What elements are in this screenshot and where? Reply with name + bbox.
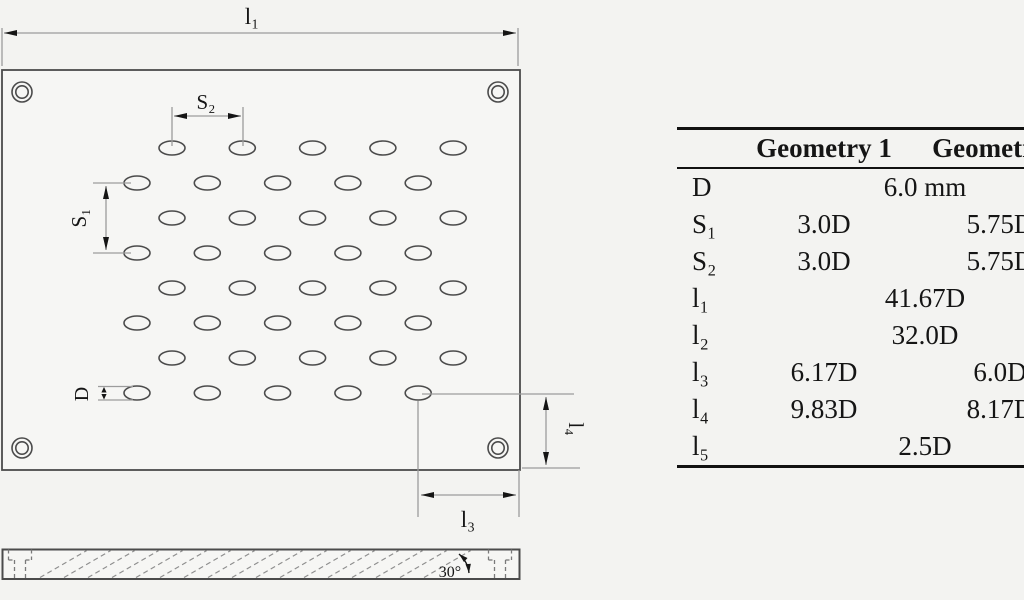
geometry1-value: 3.0D [749, 243, 899, 280]
l4-label: l₄ [564, 422, 588, 435]
row-shared-value: 2.5D [749, 428, 1024, 467]
figure-canvas: l₁ S₂ S₁ D l₄ [0, 0, 1024, 600]
row-label: l₃ [677, 354, 749, 391]
side-section-view: 30° [3, 550, 520, 582]
row-shared-value: 32.0D [749, 317, 1024, 354]
row-label: D [677, 168, 749, 206]
geometry2-value: 8.17D [899, 391, 1024, 428]
geometry1-value: 6.17D [749, 354, 899, 391]
l1-label: l₁ [245, 4, 259, 29]
s1-label: S₁ [67, 208, 91, 227]
geometry1-value: 9.83D [749, 391, 899, 428]
row-shared-value: 6.0 mm [749, 168, 1024, 206]
row-label: S₂ [677, 243, 749, 280]
geometry2-value: 5.75D [899, 243, 1024, 280]
geometry-table: Geometry 1 Geometry 2 D 6.0 mm S₁ 3.0D 5… [677, 127, 1024, 468]
table-row-l5: l₅ 2.5D [677, 428, 1024, 467]
d-label: D [71, 387, 93, 401]
row-label: l₅ [677, 428, 749, 467]
table-header-row: Geometry 1 Geometry 2 [677, 129, 1024, 169]
geometry-parameters-table: Geometry 1 Geometry 2 D 6.0 mm S₁ 3.0D 5… [677, 127, 1024, 468]
table-row-s2: S₂ 3.0D 5.75D [677, 243, 1024, 280]
table-row-l4: l₄ 9.83D 8.17D [677, 391, 1024, 428]
hatch-angle-label: 30° [439, 564, 461, 581]
table-row-l1: l₁ 41.67D [677, 280, 1024, 317]
dimension-l1: l₁ [2, 4, 518, 66]
table-row-l3: l₃ 6.17D 6.0D [677, 354, 1024, 391]
row-label: l₂ [677, 317, 749, 354]
table-row-d: D 6.0 mm [677, 168, 1024, 206]
perforated-plate-drawing: l₁ S₂ S₁ D l₄ [0, 0, 660, 600]
parameter-column-header [677, 129, 749, 169]
geometry2-value: 5.75D [899, 206, 1024, 243]
row-label: S₁ [677, 206, 749, 243]
row-shared-value: 41.67D [749, 280, 1024, 317]
plate-outline [2, 70, 520, 470]
table-row-l2: l₂ 32.0D [677, 317, 1024, 354]
row-label: l₁ [677, 280, 749, 317]
row-label: l₄ [677, 391, 749, 428]
table-row-s1: S₁ 3.0D 5.75D [677, 206, 1024, 243]
geometry2-value: 6.0D [899, 354, 1024, 391]
geometry1-value: 3.0D [749, 206, 899, 243]
l3-label: l₃ [461, 507, 475, 532]
geometry1-column-header: Geometry 1 [749, 129, 899, 169]
s2-label: S₂ [196, 90, 215, 114]
geometry2-column-header: Geometry 2 [899, 129, 1024, 169]
